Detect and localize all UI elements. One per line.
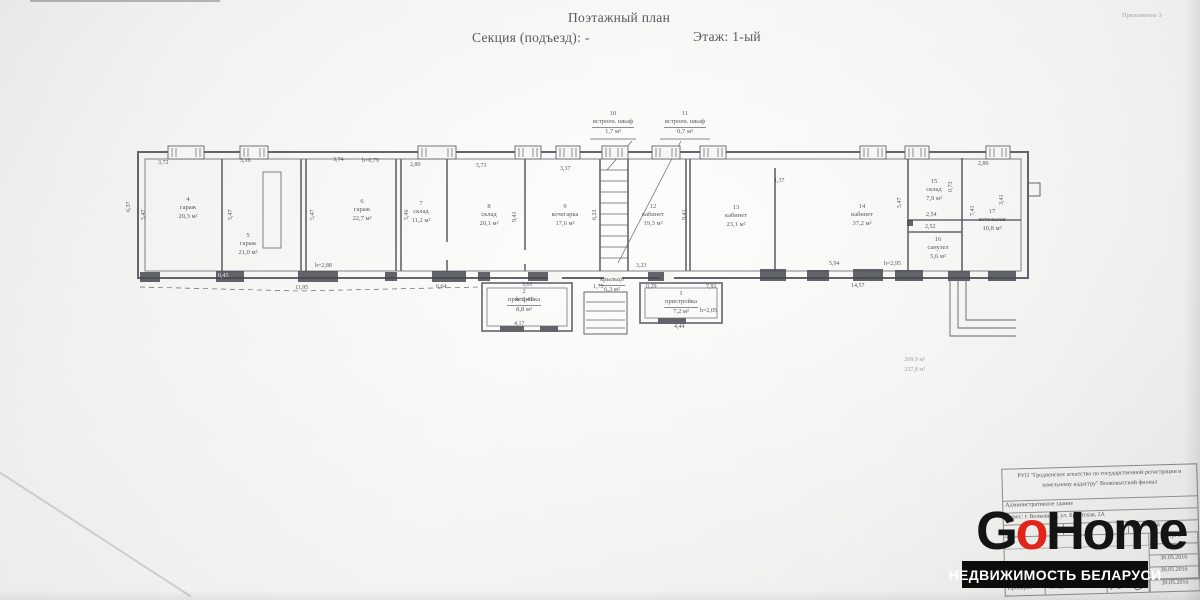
dimension: 7,91 xyxy=(706,284,717,290)
dimension: h=0,79 xyxy=(362,158,379,164)
dimension: 7,41 xyxy=(970,206,976,217)
dimension: 6,64 xyxy=(436,284,447,290)
closet-annotation: 10встроен. шкаф1,7 м² xyxy=(592,110,634,137)
dimension: h=2,88 xyxy=(315,263,332,269)
dimension: 14,57 xyxy=(851,283,865,289)
dimension: 3,72 xyxy=(158,160,169,166)
dimension: h=2,41 xyxy=(516,297,533,303)
dimension: 2,86 xyxy=(978,161,989,167)
dimension: 0,45 xyxy=(218,273,229,279)
dimension: 3,74 xyxy=(333,157,344,163)
dimension: 0,29 xyxy=(646,284,657,290)
dimension: 2,54 xyxy=(926,212,937,218)
dimension: 1,37 xyxy=(774,178,785,184)
gohome-logo: GoHome xyxy=(976,504,1186,558)
annex-label: 1пристройка7,2 м² xyxy=(664,290,698,317)
dimension: 6,37 xyxy=(126,202,132,213)
total-area-2: 237,8 м² xyxy=(880,366,925,376)
room-label: 17котельная10,8 м² xyxy=(978,208,1005,233)
room-label: 5гараж21,0 м² xyxy=(238,232,257,257)
dimension: 5,47 xyxy=(897,198,903,209)
total-area-1: 209,9 м² xyxy=(880,356,925,366)
room-label: 12кабинет19,3 м² xyxy=(642,203,664,228)
scan-edge-shadow-bottom xyxy=(0,590,1200,600)
dimension: 9,41 xyxy=(682,210,688,221)
dimension: 2,80 xyxy=(410,162,421,168)
dimension: 5,73 xyxy=(476,163,487,169)
dimension: 3,37 xyxy=(560,166,571,172)
dimension: h=2,95 xyxy=(884,261,901,267)
room-label: 6гараж22,7 м² xyxy=(352,198,371,223)
logo-word-home: Home xyxy=(1046,501,1186,561)
room-label: 14кабинет37,2 м² xyxy=(851,203,873,228)
scanned-floor-plan-page: { "header": { "attachment": "Приложение … xyxy=(0,0,1200,600)
dimension: 4,44 xyxy=(674,324,685,330)
closet-annotation: 11встроен. шкаф0,7 м² xyxy=(664,110,706,137)
room-label: 7склад11,2 м² xyxy=(412,200,431,225)
dimension: 6,22 xyxy=(592,210,598,221)
dimension: 5,47 xyxy=(310,210,316,221)
dimension: 4,17 xyxy=(514,321,525,327)
dimension: 5,94 xyxy=(829,261,840,267)
dimension: 11,95 xyxy=(295,285,308,291)
dimension: 1,75 xyxy=(593,284,604,290)
dimension: 5,46 xyxy=(404,210,410,221)
dimension: 3,61 xyxy=(522,282,533,288)
scan-edge-shadow-right xyxy=(1184,0,1200,600)
dimension: 3,41 xyxy=(999,195,1005,206)
dimension: h=2,05 xyxy=(700,308,717,314)
logo-letter-o: o xyxy=(1016,501,1047,561)
gohome-tagline: НЕДВИЖИМОСТЬ БЕЛАРУСИ xyxy=(962,561,1148,588)
room-label: 9кочегарка17,6 м² xyxy=(552,203,579,228)
room-label: 4гараж20,3 м² xyxy=(178,196,197,221)
dimension: 3,23 xyxy=(636,263,647,269)
room-label: 16санузел5,6 м² xyxy=(927,236,948,261)
dimension: 5,47 xyxy=(141,210,147,221)
logo-letter-g: G xyxy=(976,501,1016,561)
room-label: 13кабинет23,1 м² xyxy=(725,204,747,229)
dimension: 9,41 xyxy=(512,212,518,223)
room-label: 15склад7,9 м² xyxy=(926,178,942,203)
dimension: 3,16 xyxy=(240,158,251,164)
dimension: 0,73 xyxy=(948,182,954,193)
dimension: 5,47 xyxy=(228,210,234,221)
room-label: 8склад20,1 м² xyxy=(479,203,498,228)
dimension: 2,52 xyxy=(925,224,936,230)
